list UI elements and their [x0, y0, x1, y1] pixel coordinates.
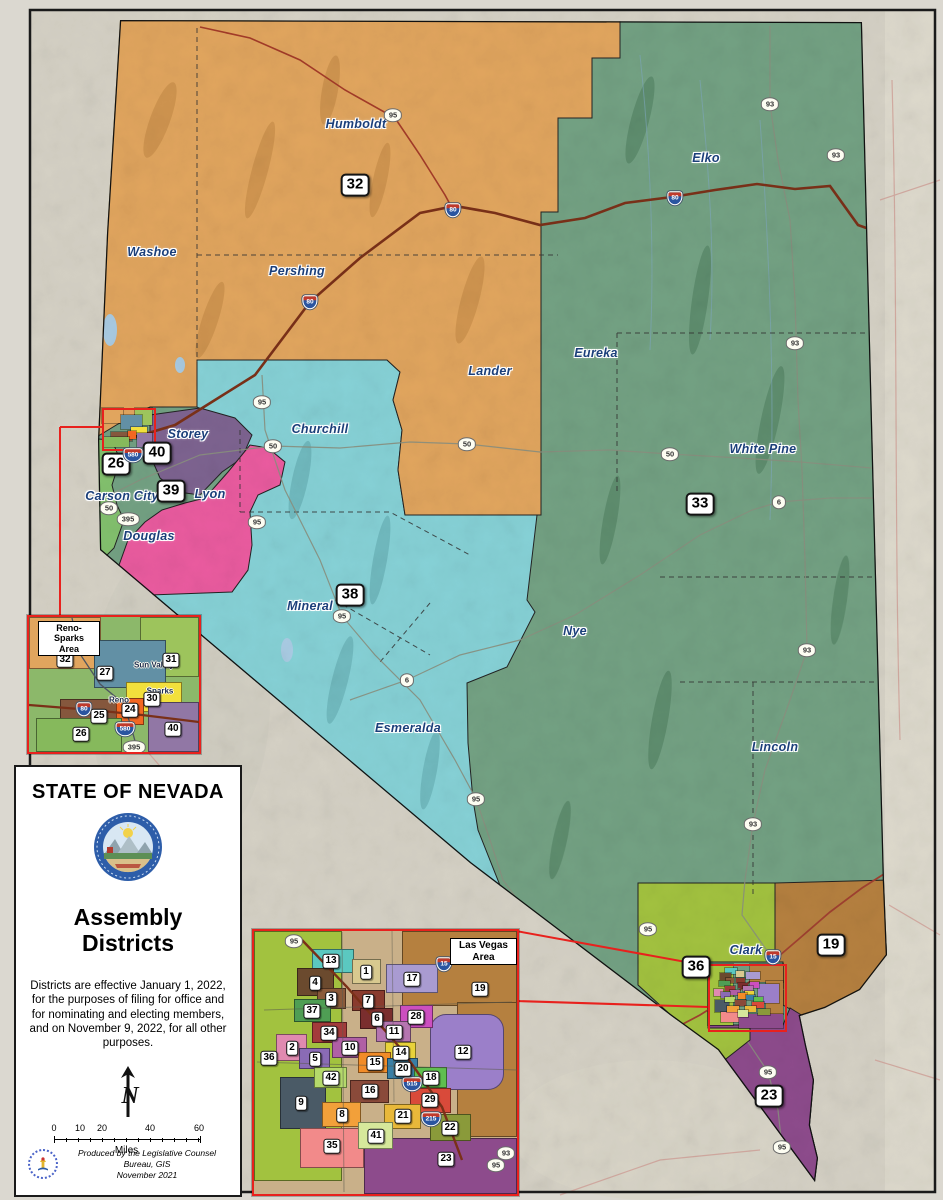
- credit-text: Produced by the Legislative Counsel Bure…: [62, 1148, 232, 1181]
- reno-sparks-inset-map: 39580580395Sun ValleySparksReno322731302…: [27, 615, 201, 754]
- district-badge-29: 29: [421, 1093, 438, 1108]
- route-shield-6: 6: [772, 495, 786, 509]
- route-shield-50: 50: [458, 437, 476, 451]
- district-badge-9: 9: [295, 1096, 307, 1111]
- county-label-elko: Elko: [692, 151, 720, 165]
- district-badge-32: 32: [341, 174, 370, 197]
- county-label-churchill: Churchill: [292, 422, 349, 436]
- route-shield-95: 95: [248, 515, 266, 529]
- route-shield-95: 95: [253, 395, 271, 409]
- county-label-clark: Clark: [730, 943, 763, 957]
- district-badge-34: 34: [320, 1026, 337, 1041]
- nevada-state-seal-icon: [93, 812, 163, 882]
- district-badge-8: 8: [336, 1108, 348, 1123]
- district-badge-14: 14: [392, 1046, 409, 1061]
- north-arrow-letter: N: [120, 1083, 140, 1109]
- district-badge-4: 4: [309, 976, 321, 991]
- county-label-white-pine: White Pine: [730, 442, 797, 456]
- interstate-shield-215: 215: [422, 1112, 441, 1126]
- reno-inset-title: Reno-Sparks Area: [38, 621, 100, 656]
- effective-date-note: Districts are effective January 1, 2022,…: [27, 979, 229, 1051]
- route-shield-95: 95: [487, 1158, 505, 1172]
- scale-bar-line: [54, 1136, 201, 1143]
- route-shield-95: 95: [384, 108, 402, 122]
- route-shield-395: 395: [123, 740, 146, 754]
- lcb-logo-icon: [28, 1149, 58, 1179]
- county-label-lyon: Lyon: [194, 487, 225, 501]
- district-badge-39: 39: [157, 480, 186, 503]
- map-main-title: Assembly Districts: [16, 904, 240, 957]
- district-badge-36: 36: [682, 956, 711, 979]
- district-badge-35: 35: [323, 1139, 340, 1154]
- interstate-shield-515: 515: [403, 1077, 422, 1091]
- county-label-pershing: Pershing: [269, 264, 325, 278]
- vegas-inset-title: Las Vegas Area: [450, 938, 517, 965]
- county-label-lander: Lander: [468, 364, 511, 378]
- county-label-humboldt: Humboldt: [326, 117, 387, 131]
- route-shield-95: 95: [639, 922, 657, 936]
- district-badge-17: 17: [403, 972, 420, 987]
- district-badge-40: 40: [164, 722, 181, 737]
- route-shield-50: 50: [661, 447, 679, 461]
- route-shield-93: 93: [744, 817, 762, 831]
- credit-line1: Produced by the Legislative Counsel Bure…: [78, 1148, 216, 1169]
- district-badge-3: 3: [325, 992, 337, 1007]
- district-badge-24: 24: [121, 703, 138, 718]
- map-main-title-line2: Districts: [16, 930, 240, 956]
- district-badge-28: 28: [407, 1010, 424, 1025]
- route-shield-93: 93: [798, 643, 816, 657]
- county-label-storey: Storey: [168, 427, 209, 441]
- county-label-mineral: Mineral: [287, 599, 333, 613]
- district-badge-19: 19: [471, 982, 488, 997]
- district-badge-20: 20: [394, 1062, 411, 1077]
- district-badge-19: 19: [817, 934, 846, 957]
- district-badge-40: 40: [143, 442, 172, 465]
- route-shield-93: 93: [786, 336, 804, 350]
- district-badge-23: 23: [755, 1085, 784, 1108]
- county-label-lincoln: Lincoln: [752, 740, 799, 754]
- reno-inset-title-line1: Reno-Sparks: [54, 623, 84, 643]
- county-label-douglas: Douglas: [123, 529, 174, 543]
- district-badge-31: 31: [162, 653, 179, 668]
- district-badge-22: 22: [441, 1121, 458, 1136]
- district-badge-27: 27: [96, 666, 113, 681]
- district-badge-42: 42: [322, 1071, 339, 1086]
- district-badge-15: 15: [366, 1056, 383, 1071]
- county-label-nye: Nye: [563, 624, 587, 638]
- nevada-assembly-districts-map: 39580580395Sun ValleySparksReno322731302…: [0, 0, 943, 1200]
- scale-tick-40: 40: [145, 1123, 155, 1133]
- district-badge-23: 23: [437, 1152, 454, 1167]
- route-shield-50: 50: [264, 439, 282, 453]
- district-badge-16: 16: [361, 1084, 378, 1099]
- credit-block: Produced by the Legislative Counsel Bure…: [28, 1148, 232, 1181]
- map-main-title-line1: Assembly: [16, 904, 240, 930]
- route-shield-395: 395: [117, 512, 140, 526]
- district-badge-41: 41: [367, 1129, 384, 1144]
- route-shield-95: 95: [773, 1140, 791, 1154]
- route-shield-6: 6: [400, 673, 414, 687]
- county-label-carson-city: Carson City: [85, 489, 158, 503]
- reno-inset-title-line2: Area: [59, 644, 79, 654]
- route-shield-93: 93: [497, 1146, 515, 1160]
- district-badge-26: 26: [72, 727, 89, 742]
- district-badge-12: 12: [454, 1045, 471, 1060]
- district-badge-7: 7: [362, 994, 374, 1009]
- route-shield-95: 95: [759, 1065, 777, 1079]
- district-badge-11: 11: [386, 1025, 403, 1040]
- district-badge-2: 2: [286, 1041, 298, 1056]
- district-badge-21: 21: [394, 1109, 411, 1124]
- district-badge-38: 38: [336, 584, 365, 607]
- route-shield-95: 95: [467, 792, 485, 806]
- route-shield-95: 95: [333, 609, 351, 623]
- title-block: STATE OF NEVADA Assembly Districts Dist: [14, 765, 242, 1197]
- vegas-inset-roads: [254, 931, 517, 1194]
- las-vegas-inset-map: 9515515215939513141719373762834112101412…: [252, 929, 519, 1196]
- district-badge-18: 18: [422, 1071, 439, 1086]
- route-shield-95: 95: [285, 934, 303, 948]
- district-badge-25: 25: [90, 709, 107, 724]
- interstate-shield-580: 580: [116, 722, 135, 736]
- district-badge-1: 1: [360, 965, 372, 980]
- county-label-washoe: Washoe: [127, 245, 177, 259]
- route-shield-50: 50: [100, 501, 118, 515]
- credit-line2: November 2021: [117, 1170, 177, 1180]
- las-vegas-extent-rectangle: [708, 964, 787, 1032]
- district-badge-13: 13: [322, 954, 339, 969]
- district-badge-5: 5: [309, 1052, 321, 1067]
- county-label-esmeralda: Esmeralda: [375, 721, 441, 735]
- route-shield-93: 93: [761, 97, 779, 111]
- interstate-shield-580: 580: [124, 448, 143, 462]
- route-shield-93: 93: [827, 148, 845, 162]
- north-arrow-icon: N: [110, 1065, 146, 1119]
- district-badge-33: 33: [686, 493, 715, 516]
- district-badge-6: 6: [371, 1012, 383, 1027]
- sheet-title: STATE OF NEVADA: [16, 781, 240, 804]
- scale-tick-0: 0: [51, 1123, 56, 1133]
- scale-tick-20: 20: [97, 1123, 107, 1133]
- district-badge-37: 37: [303, 1004, 320, 1019]
- district-badge-36: 36: [260, 1051, 277, 1066]
- district-badge-30: 30: [143, 692, 160, 707]
- district-badge-10: 10: [341, 1041, 358, 1056]
- scale-tick-60: 60: [194, 1123, 204, 1133]
- scale-tick-10: 10: [75, 1123, 85, 1133]
- county-label-eureka: Eureka: [574, 346, 618, 360]
